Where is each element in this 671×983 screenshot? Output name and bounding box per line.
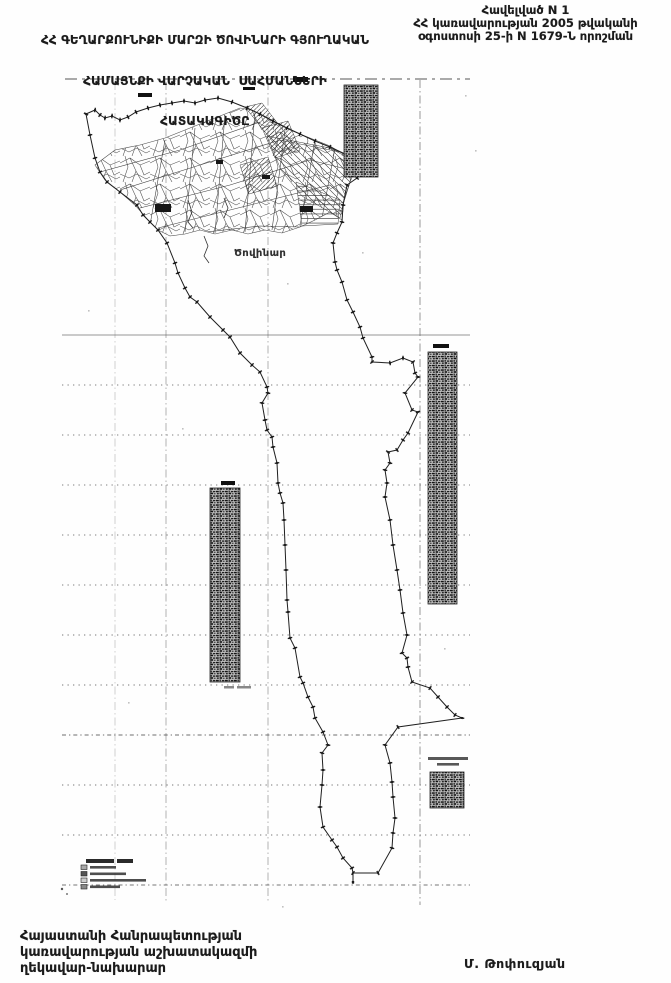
- annex-line3: օգոստոսի 25-ի N 1679-Ն որոշման: [385, 30, 666, 43]
- signature-name: Մ. Թոփուզյան: [464, 956, 566, 971]
- footer-office-line1: Հայաստանի Հանրապետության: [20, 929, 257, 945]
- legend-symbol: [81, 885, 87, 890]
- coordinate-table-west: [210, 488, 240, 682]
- legend-symbol: [81, 878, 87, 883]
- settlement-label: Ծովինար: [234, 248, 286, 259]
- scanned-document-page: ՀՀ ԳԵՂԱՐՔՈՒՆԻՔԻ ՄԱՐԶԻ ԾՈՎԻՆԱՐԻ ԳՅՈՒՂԱԿԱՆ…: [0, 0, 671, 983]
- map-legend: [61, 859, 146, 895]
- annex-reference: Հավելված N 1 ՀՀ կառավարության 2005 թվակա…: [385, 4, 666, 43]
- document-title: ՀՀ ԳԵՂԱՐՔՈՒՆԻՔԻ ՄԱՐԶԻ ԾՈՎԻՆԱՐԻ ԳՅՈՒՂԱԿԱՆ…: [22, 7, 388, 156]
- document-title-line2: ՀԱՄԱՅՆՔԻ ՎԱՐՉԱԿԱՆ ՍԱՀՄԱՆՆԵՐԻ: [22, 75, 388, 89]
- footer-office-line2: կառավարության աշխատակազմի: [20, 945, 257, 961]
- coordinate-table-east: [428, 352, 457, 604]
- footer-office-title: Հայաստանի Հանրապետության կառավարության ա…: [20, 929, 257, 977]
- legend-symbol: [81, 872, 87, 877]
- document-title-line3: ՀԱՏԱԿԱԳԻԾԸ: [22, 115, 388, 129]
- coordinate-table-south: [430, 772, 464, 808]
- legend-symbol: [81, 865, 87, 870]
- footer-office-line3: ղեկավար-նախարար: [20, 961, 257, 977]
- document-title-line1: ՀՀ ԳԵՂԱՐՔՈՒՆԻՔԻ ՄԱՐԶԻ ԾՈՎԻՆԱՐԻ ԳՅՈՒՂԱԿԱՆ: [22, 34, 388, 48]
